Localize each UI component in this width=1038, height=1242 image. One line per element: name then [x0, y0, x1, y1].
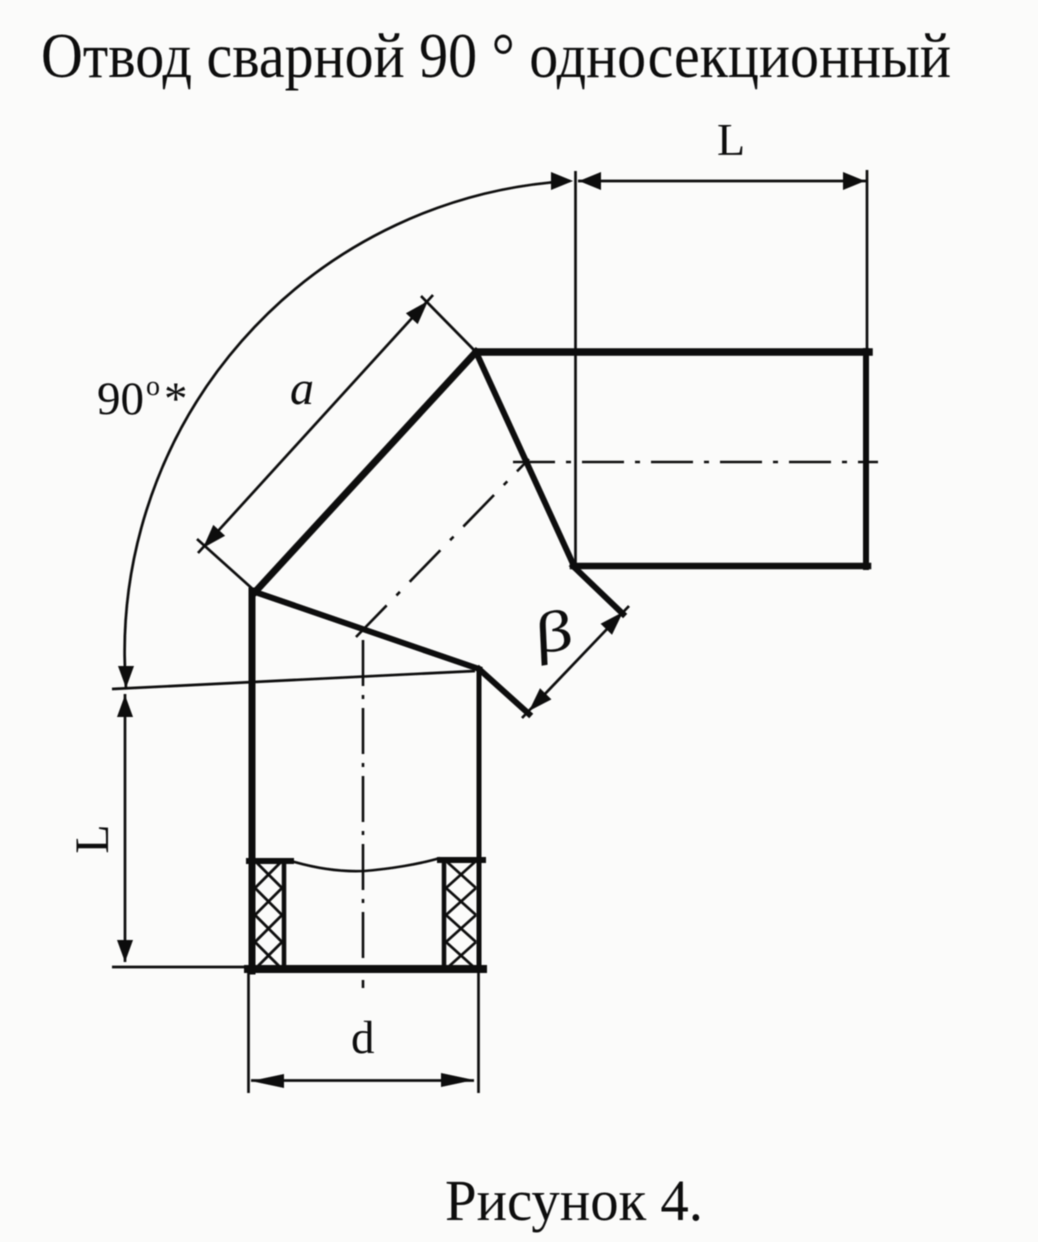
svg-text:Рисунок 4.: Рисунок 4. — [445, 1168, 703, 1233]
svg-text:L: L — [717, 114, 745, 165]
svg-text:a: a — [290, 362, 314, 415]
svg-text:d: d — [351, 1012, 375, 1064]
svg-text:L: L — [66, 824, 119, 853]
svg-text:90о*: 90о* — [97, 371, 188, 425]
svg-text:Отвод сварной 90 ° односекцион: Отвод сварной 90 ° односекционный — [41, 20, 951, 91]
